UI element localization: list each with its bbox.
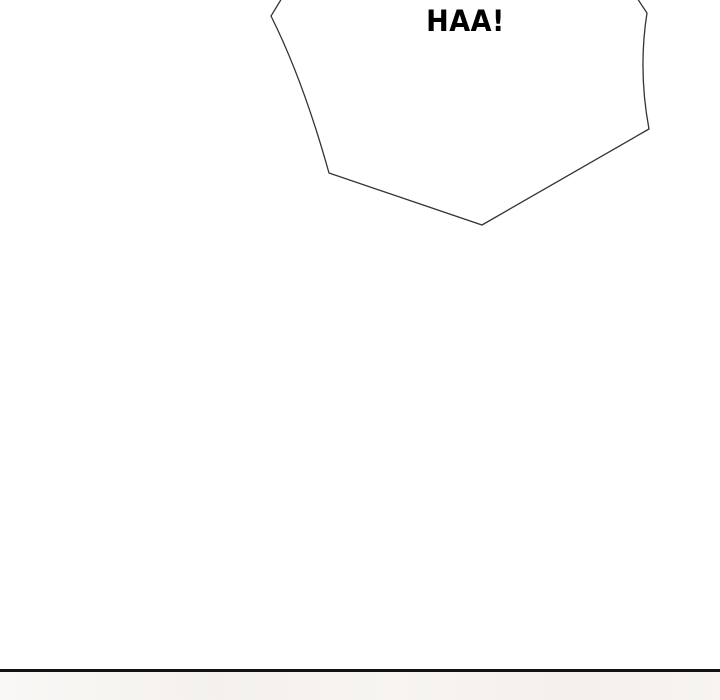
next-panel-edge <box>0 672 720 700</box>
speech-bubble-text: HAA! <box>399 5 532 40</box>
speech-bubble <box>0 0 720 260</box>
comic-page: HAA! <box>0 0 720 700</box>
